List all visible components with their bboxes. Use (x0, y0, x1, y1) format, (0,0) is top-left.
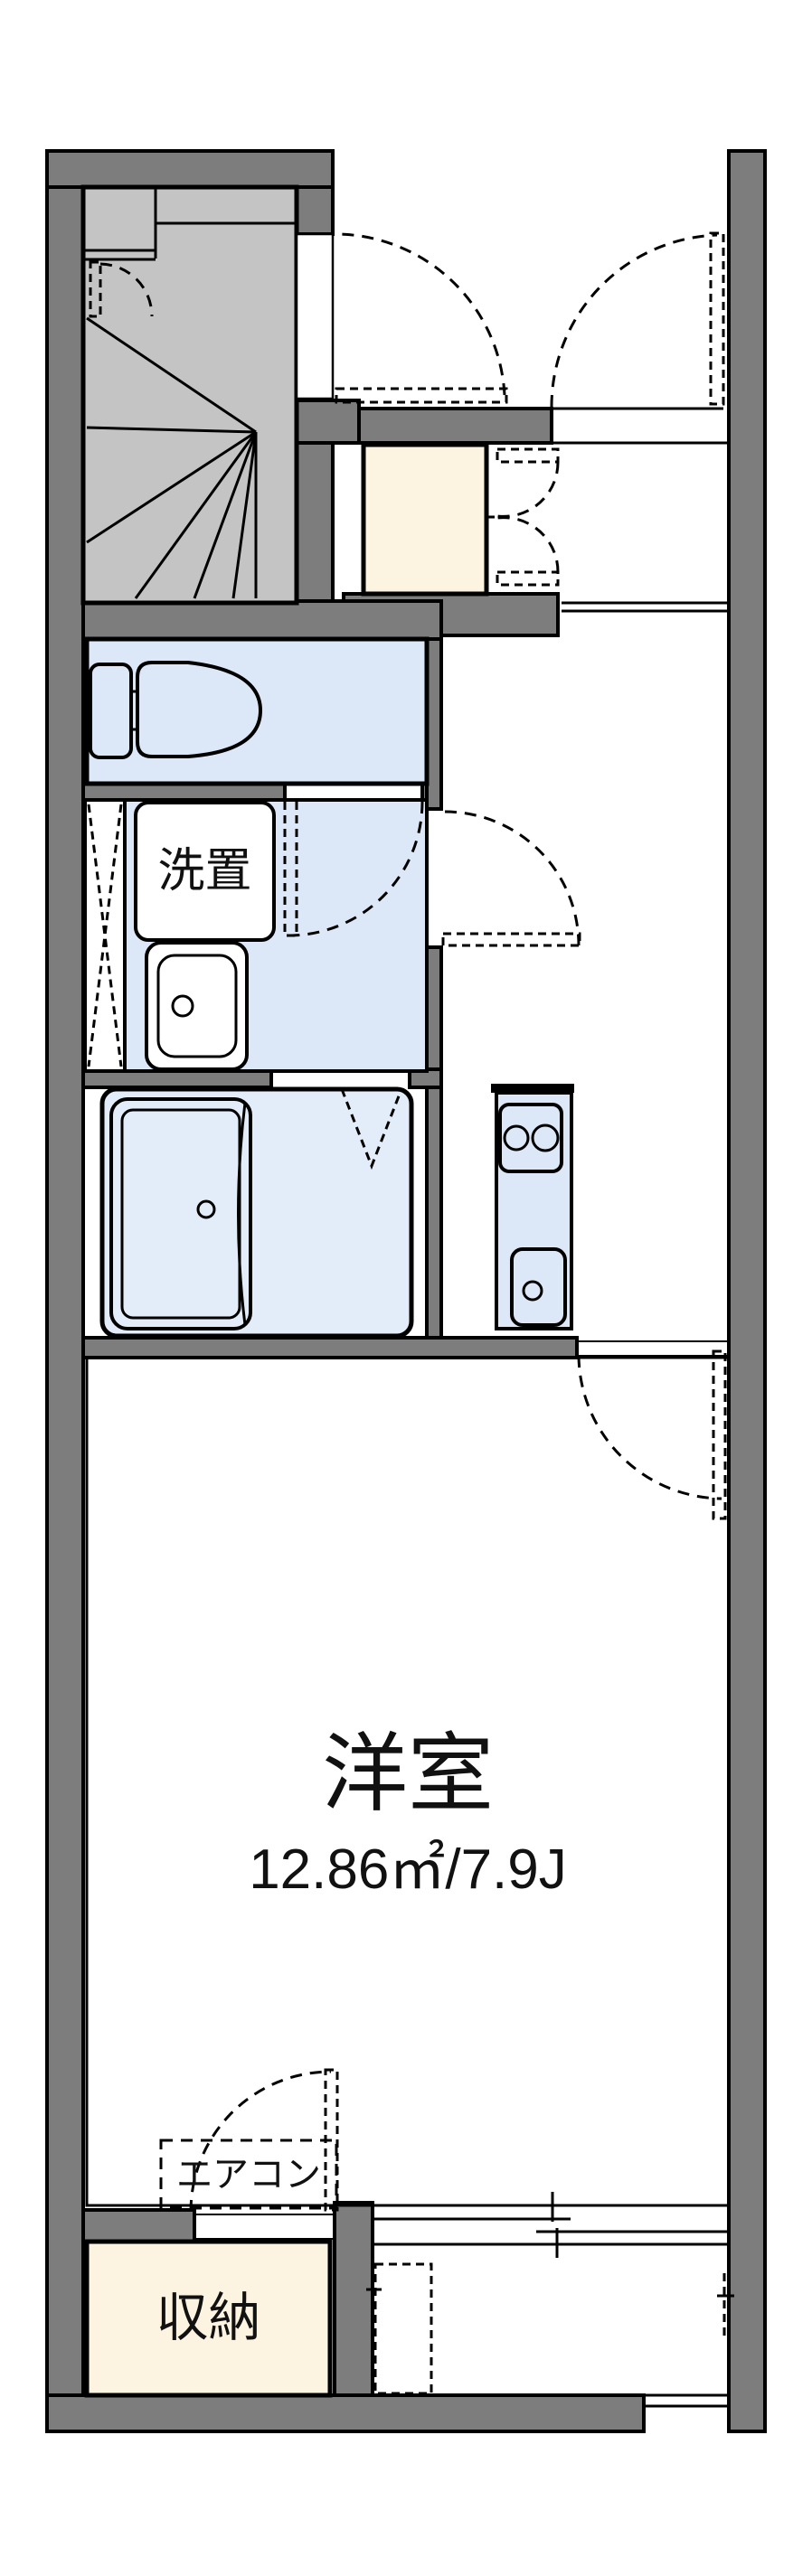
storage-label: 収納 (87, 2242, 330, 2395)
stair-door-arc (335, 234, 505, 395)
aircon-label: エアコン (161, 2140, 336, 2208)
washer-space-label: 洗置 (136, 803, 274, 940)
stair-door-opening (297, 234, 333, 399)
shoebox-door-arc-top (497, 462, 558, 516)
front-door-leaf (711, 233, 723, 404)
window-balcony (366, 2192, 734, 2406)
shoebox-door-leaf-top (497, 449, 558, 462)
shoe-cabinet (364, 445, 486, 594)
washing-machine-space (85, 800, 125, 1071)
wall-left (47, 151, 83, 2431)
bathroom-unit (102, 1089, 411, 1336)
washroom-door-arc (445, 812, 579, 945)
rooms (83, 187, 729, 2395)
main-room-door-arc (579, 1356, 722, 1499)
kitchen-counter-top-bar (491, 1084, 574, 1093)
stair-door-leaf (336, 389, 506, 402)
wall-entrance-band (359, 409, 552, 443)
front-door-arc (552, 235, 717, 407)
outdoor-unit-dashed-box (375, 2264, 431, 2393)
main-room-label: 洋室 (87, 1728, 729, 1822)
shoebox-door-leaf-bottom (497, 572, 558, 585)
wall-toilet-washroom-left (83, 784, 285, 800)
wall-top (47, 151, 333, 187)
wall-storage-top (83, 2210, 194, 2242)
wall-bottom (47, 2395, 644, 2431)
wall-right (729, 151, 765, 2431)
main-room-door (577, 1341, 729, 1518)
kitchen-fixtures (491, 1084, 574, 1329)
main-room-door-leaf (713, 1351, 725, 1518)
wall-corridor-lower (427, 947, 441, 1338)
shoebox-door-arc-bottom (497, 518, 558, 572)
main-room-area-label: 12.86㎡/7.9J (87, 1835, 729, 1905)
wall-stair-right-upper (297, 187, 333, 234)
floor-plan-drawing (0, 0, 812, 2576)
wall-stair-toilet-band (83, 601, 441, 639)
floor-plan-canvas: 洗置 洋室 12.86㎡/7.9J エアコン 収納 (0, 0, 812, 2576)
wall-wet-bottom (83, 1338, 577, 1358)
washroom-door-leaf (443, 934, 580, 945)
